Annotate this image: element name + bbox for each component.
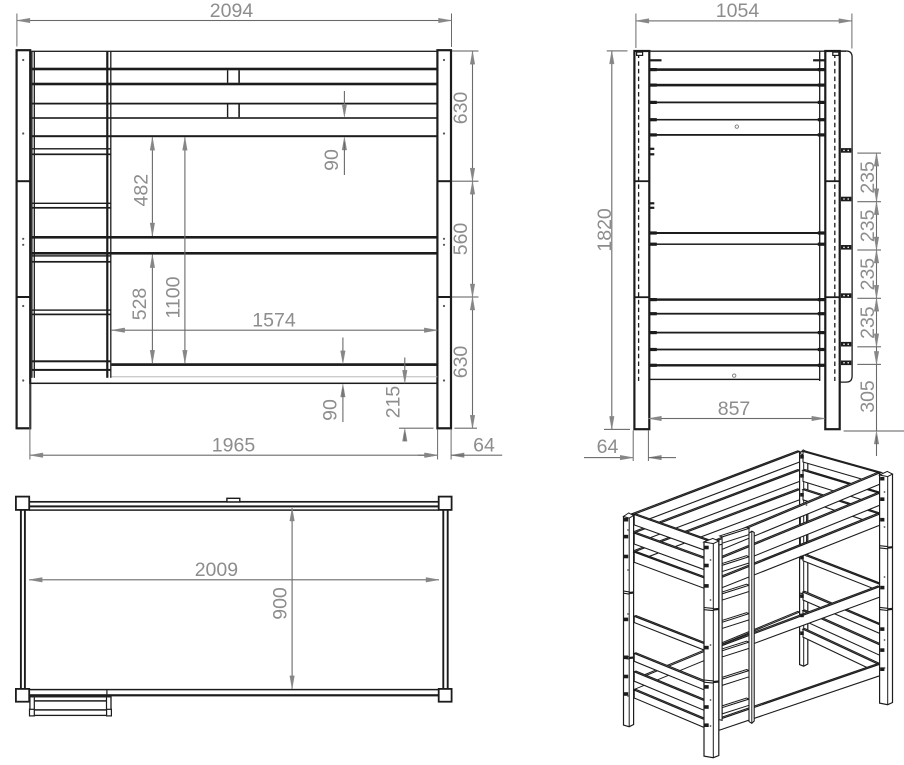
svg-text:235: 235 [857,209,879,242]
svg-text:305: 305 [857,380,879,413]
svg-text:64: 64 [473,434,495,456]
svg-text:90: 90 [320,399,342,421]
svg-text:1820: 1820 [594,208,616,252]
svg-text:2009: 2009 [195,559,238,581]
svg-text:1100: 1100 [163,276,185,318]
svg-text:528: 528 [129,288,151,321]
svg-text:90: 90 [321,149,343,171]
svg-text:2094: 2094 [210,0,254,22]
svg-text:1574: 1574 [252,310,296,332]
svg-text:1965: 1965 [212,434,256,456]
svg-text:64: 64 [597,436,619,458]
svg-text:215: 215 [383,386,405,419]
svg-text:857: 857 [718,398,751,420]
svg-text:900: 900 [270,587,292,620]
svg-text:482: 482 [131,174,153,207]
svg-text:560: 560 [450,223,472,256]
svg-text:630: 630 [450,346,472,379]
svg-text:235: 235 [857,161,879,194]
svg-text:235: 235 [857,258,879,291]
svg-text:1054: 1054 [716,0,760,22]
svg-text:235: 235 [857,306,879,339]
svg-text:630: 630 [450,92,472,125]
